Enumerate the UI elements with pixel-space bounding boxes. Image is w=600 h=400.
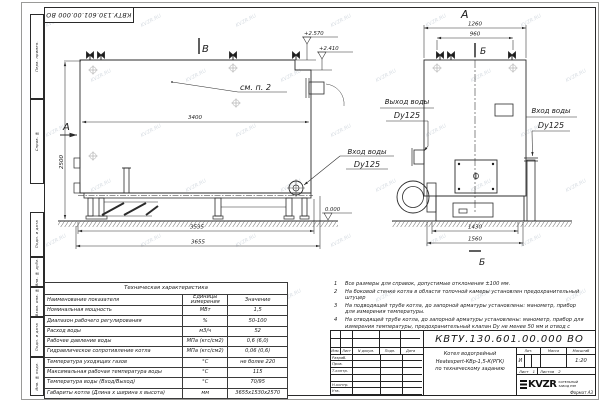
sign-row: Пров. — [331, 361, 423, 368]
spec-row: Номинальная мощностьМВт1,5 — [45, 306, 288, 316]
margin-field: Взам. инв. № — [30, 287, 44, 317]
logo-text: KVZR — [528, 379, 556, 390]
inlet-callout-mid-2: Dy125 — [354, 160, 380, 169]
outlet-callout-1: Выход воды — [385, 98, 430, 106]
product-name: Котел водогрейный — [424, 351, 516, 359]
center-mark-icon — [88, 151, 97, 160]
safety-valve-icon — [293, 52, 300, 60]
product-model: Heatexpert-КВр-1,5-К(РГК) — [424, 359, 516, 367]
elev-top: +2.570 — [304, 31, 324, 37]
inverted-doc-number-box: КВТУ.130.601.00.000 ВО — [44, 7, 134, 23]
outlet-callout-2: Dy125 — [394, 111, 420, 120]
title-block: КВТУ.130.601.00.000 ВО Изм.ЛистN докум.П… — [330, 330, 596, 396]
see-note-label: см. п. 2 — [240, 83, 271, 92]
format-label: Формат А3 — [570, 390, 593, 395]
sheets-row: Лист 1 Листов 2 — [517, 368, 595, 375]
section-label-b-top: Б — [480, 47, 486, 57]
spec-table-rows: Номинальная мощностьМВт1,5Диапазон рабоч… — [45, 306, 288, 399]
note-item: 1Все размеры для справок, допустимые отк… — [334, 281, 584, 288]
margin-field: Справ. № — [30, 99, 44, 184]
inlet-callout-mid-1: Вход воды — [347, 148, 387, 156]
notes-list: 1Все размеры для справок, допустимые отк… — [334, 281, 584, 337]
note-item: 2На боковой стенке котла в области топоч… — [334, 289, 584, 302]
sign-row: Т.контр. — [331, 368, 423, 375]
drawing-sheet: КВТУ.130.601.00.000 ВО — [0, 0, 600, 400]
margin-field: Подп. и дата — [30, 317, 44, 357]
safety-valve-icon — [509, 52, 516, 60]
logo-subtitle: КОТЕЛЬНЫЙ ЗАВОД РЭП — [558, 381, 578, 388]
lit-value: И — [517, 355, 525, 367]
spec-row: Диапазон рабочего регулирования%50-100 — [45, 316, 288, 326]
margin-field: Перв. примен. — [30, 14, 44, 99]
inlet-callout-r-2: Dy125 — [538, 121, 564, 130]
lit-header: Лит. — [517, 348, 541, 354]
drawing-svg: 3400 2500 3535 3655 В А см. п. 2 — [44, 7, 596, 282]
dim-3655: 3655 — [191, 240, 205, 246]
spec-row: Максимальная рабочая температура воды°С1… — [45, 367, 288, 377]
boiler-body-side — [80, 60, 311, 193]
safety-valve-icon — [230, 52, 237, 60]
product-note: по техническому заданию — [424, 366, 516, 374]
inverted-doc-number: КВТУ.130.601.00.000 ВО — [46, 11, 131, 19]
doc-number: КВТУ.130.601.00.000 ВО — [424, 331, 595, 347]
inlet-pipe — [527, 160, 535, 221]
section-label-v: В — [202, 44, 209, 55]
tb-sign-rows: Разраб.Пров.Т.контр.Н.контр.Утв. — [331, 355, 423, 396]
scale-header: Масштаб — [567, 348, 595, 354]
spec-table-title: Техническая характеристика — [45, 283, 288, 295]
section-label-a: А — [62, 122, 70, 133]
sheets-label: Листов — [537, 368, 556, 374]
elev-step: +2.410 — [319, 46, 339, 52]
safety-valve-icon — [87, 52, 94, 60]
spec-row: Температура уходящих газов°Сне более 220 — [45, 357, 288, 367]
note-item: 3На подводящей трубе котла, до запорной … — [334, 303, 584, 316]
margin-field: Подп. и дата — [30, 212, 44, 257]
center-mark-icon — [432, 63, 441, 72]
spec-header-units: Единицы измерения — [183, 295, 228, 306]
scale-value: 1:20 — [567, 355, 595, 367]
dim-960: 960 — [470, 32, 481, 38]
burner — [397, 181, 429, 213]
sheets-value: 2 — [556, 368, 562, 374]
safety-valve-icon — [437, 52, 444, 60]
dim-1260: 1260 — [468, 22, 482, 28]
front-view — [392, 46, 572, 227]
mass-header: Масса — [541, 348, 567, 354]
logo-stripes-icon — [520, 380, 527, 389]
spec-row: Габариты котла (Длина х ширина х высота)… — [45, 388, 288, 398]
company-logo: KVZR КОТЕЛЬНЫЙ ЗАВОД РЭП Формат А3 — [517, 375, 595, 396]
dim-2500: 2500 — [59, 155, 65, 169]
spec-header-row: Наименование показателя Единицы измерени… — [45, 295, 288, 306]
side-view — [58, 52, 344, 227]
inlet-callout-r-1: Вход воды — [531, 107, 571, 115]
spec-table: Техническая характеристика Наименование … — [44, 282, 288, 399]
dim-3400: 3400 — [188, 115, 202, 121]
elev-zero: 0.000 — [325, 207, 341, 213]
safety-valve-icon — [448, 52, 455, 60]
spec-row: Гидравлическое сопротивление котлаМПа (к… — [45, 347, 288, 357]
sign-row: Н.контр. — [331, 382, 423, 389]
sign-row — [331, 375, 423, 382]
lit-cells: И — [517, 355, 541, 367]
margin-field: Инв. № подл. — [30, 357, 44, 396]
dim-1430: 1430 — [468, 225, 482, 231]
center-mark-icon — [508, 63, 517, 72]
center-mark-icon — [88, 65, 97, 74]
spec-row: Рабочее давление водыМПа (кгс/см2)0,6 (6… — [45, 337, 288, 347]
safety-valve-icon — [98, 52, 105, 60]
tb-spare-cells — [331, 331, 424, 347]
spec-row: Расход водым3/ч52 — [45, 326, 288, 336]
view-label-a: А — [460, 8, 469, 21]
dim-1560: 1560 — [468, 237, 482, 243]
front-view-dims: 1260 960 А Б 1430 1560 Б Выход воды Dy12… — [380, 8, 577, 268]
spec-row: Температура воды (Вход/Выход)°С70/95 — [45, 378, 288, 388]
mass-value — [541, 355, 567, 367]
sign-row: Утв. — [331, 388, 423, 395]
spec-header-name: Наименование показателя — [45, 295, 183, 306]
center-mark-icon — [231, 98, 240, 107]
sheet-label: Лист — [517, 368, 531, 374]
center-mark-icon — [228, 63, 237, 72]
margin-field: Инв. № дубл. — [30, 257, 44, 287]
tb-name-cell: Котел водогрейный Heatexpert-КВр-1,5-К(Р… — [424, 348, 517, 395]
spec-header-value: Значение — [228, 295, 288, 306]
dim-3535: 3535 — [190, 225, 204, 231]
section-label-b-bottom: Б — [479, 258, 485, 268]
sign-row: Разраб. — [331, 355, 423, 362]
